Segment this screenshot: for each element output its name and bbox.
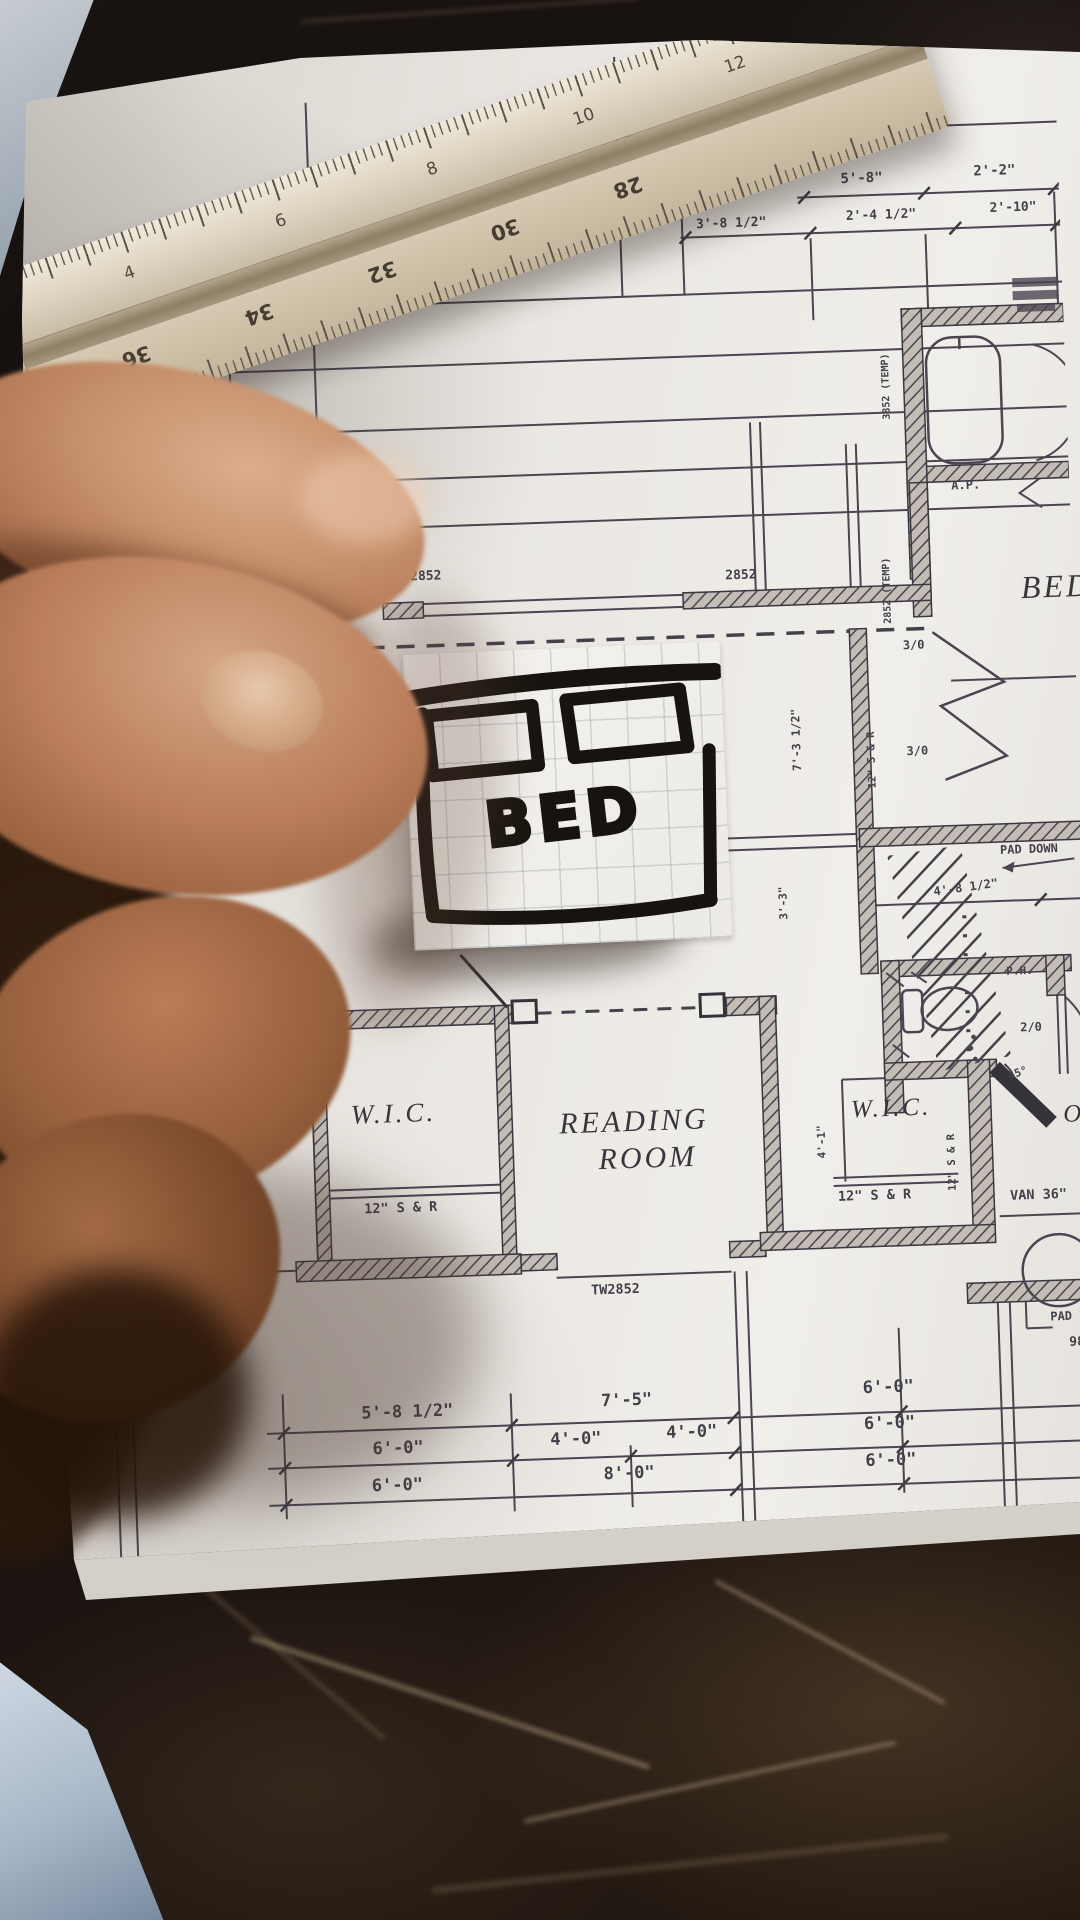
dim-bottom: 6'-0" [865, 1451, 917, 1470]
dim-bottom: 6'-0" [862, 1378, 914, 1397]
ruler-number: 32 [364, 256, 399, 288]
ap-label: A.P. [951, 478, 980, 491]
window-label: 2852 [725, 568, 757, 582]
shelf-label: 12" S & R [946, 1134, 958, 1191]
vert-dim: 7'-3 1/2" [790, 709, 804, 772]
dim-top: 5'-8" [840, 171, 883, 186]
ruler-number: 12 [722, 52, 749, 78]
dim-bottom: 4'-0" [550, 1430, 602, 1449]
dim-bottom: 4'-0" [666, 1423, 718, 1442]
ph-label: P.H. [1006, 965, 1033, 977]
door-label: 2/0 [1020, 1021, 1042, 1034]
shelf-label: 12" S & R [866, 731, 878, 788]
dim-bottom: 8'-0" [603, 1464, 655, 1483]
pad-label: PAD D [1050, 1309, 1080, 1322]
shelf-label: 12" S & R [838, 1188, 912, 1204]
ruler-number: 30 [487, 214, 522, 246]
window-label: TW2852 [591, 1283, 640, 1298]
dim-bottom: 6'-0" [864, 1414, 916, 1433]
ruler-number: 8 [424, 158, 441, 180]
dim-top: 2'-10" [989, 200, 1036, 215]
finger-highlight [300, 452, 430, 544]
van-label: VAN 36" [1010, 1188, 1067, 1203]
room-label-partial: OI [1063, 1101, 1080, 1127]
ruler-number: 10 [570, 104, 597, 130]
ruler-number: 28 [610, 171, 645, 203]
door-label: 3/0 [903, 638, 925, 651]
dim-bottom: 7'-5" [601, 1391, 653, 1410]
ruler-number: 4 [121, 262, 138, 284]
dim-top: 2'-4 1/2" [846, 208, 917, 223]
room-label-reading: ROOM [598, 1142, 698, 1175]
door-label: 3/0 [906, 744, 928, 757]
dim-top: 2'-2" [973, 163, 1016, 178]
pad-down-label: PAD DOWN [1000, 842, 1058, 856]
vert-dim: 4'-1" [816, 1125, 828, 1158]
dim-bottom: 6'-0" [372, 1477, 424, 1496]
room-label-bed: BED [1020, 569, 1080, 603]
vert-dim: 3'-3" [777, 886, 789, 919]
room-label-reading: READING [559, 1104, 709, 1139]
dim-top: 3'-8 1/2" [696, 216, 767, 231]
num-98: 98 [1069, 1335, 1080, 1349]
room-label-wic-right: W.I.C. [851, 1095, 932, 1123]
ruler-number: 34 [242, 298, 277, 330]
photo-scene: 5'-8" 2'-2" 3'-8 1/2" 2'-4 1/2" 2'-10" 2… [0, 0, 1080, 1920]
room-label-wic-left: W.I.C. [350, 1099, 436, 1129]
ruler-number: 6 [273, 210, 290, 232]
